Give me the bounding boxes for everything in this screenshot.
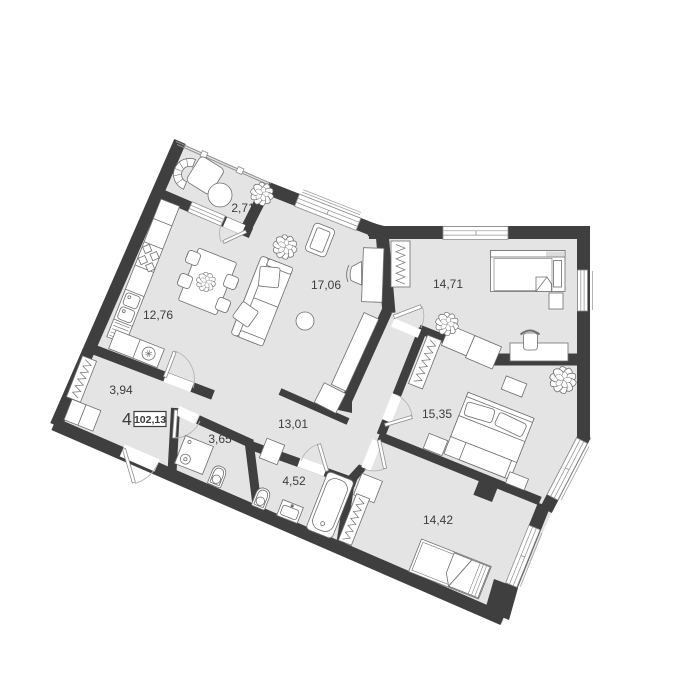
svg-text:4: 4 xyxy=(122,409,132,429)
svg-text:4,52: 4,52 xyxy=(282,474,306,488)
svg-text:14,42: 14,42 xyxy=(423,513,453,527)
svg-text:13,01: 13,01 xyxy=(278,417,308,431)
svg-text:3,65: 3,65 xyxy=(208,432,232,446)
svg-text:3,94: 3,94 xyxy=(109,383,133,397)
svg-text:102,13: 102,13 xyxy=(134,414,166,426)
svg-text:12,76: 12,76 xyxy=(143,308,173,322)
svg-text:2,71: 2,71 xyxy=(231,201,255,215)
svg-text:14,71: 14,71 xyxy=(433,277,463,291)
svg-text:15,35: 15,35 xyxy=(422,407,452,421)
svg-text:17,06: 17,06 xyxy=(311,278,341,292)
